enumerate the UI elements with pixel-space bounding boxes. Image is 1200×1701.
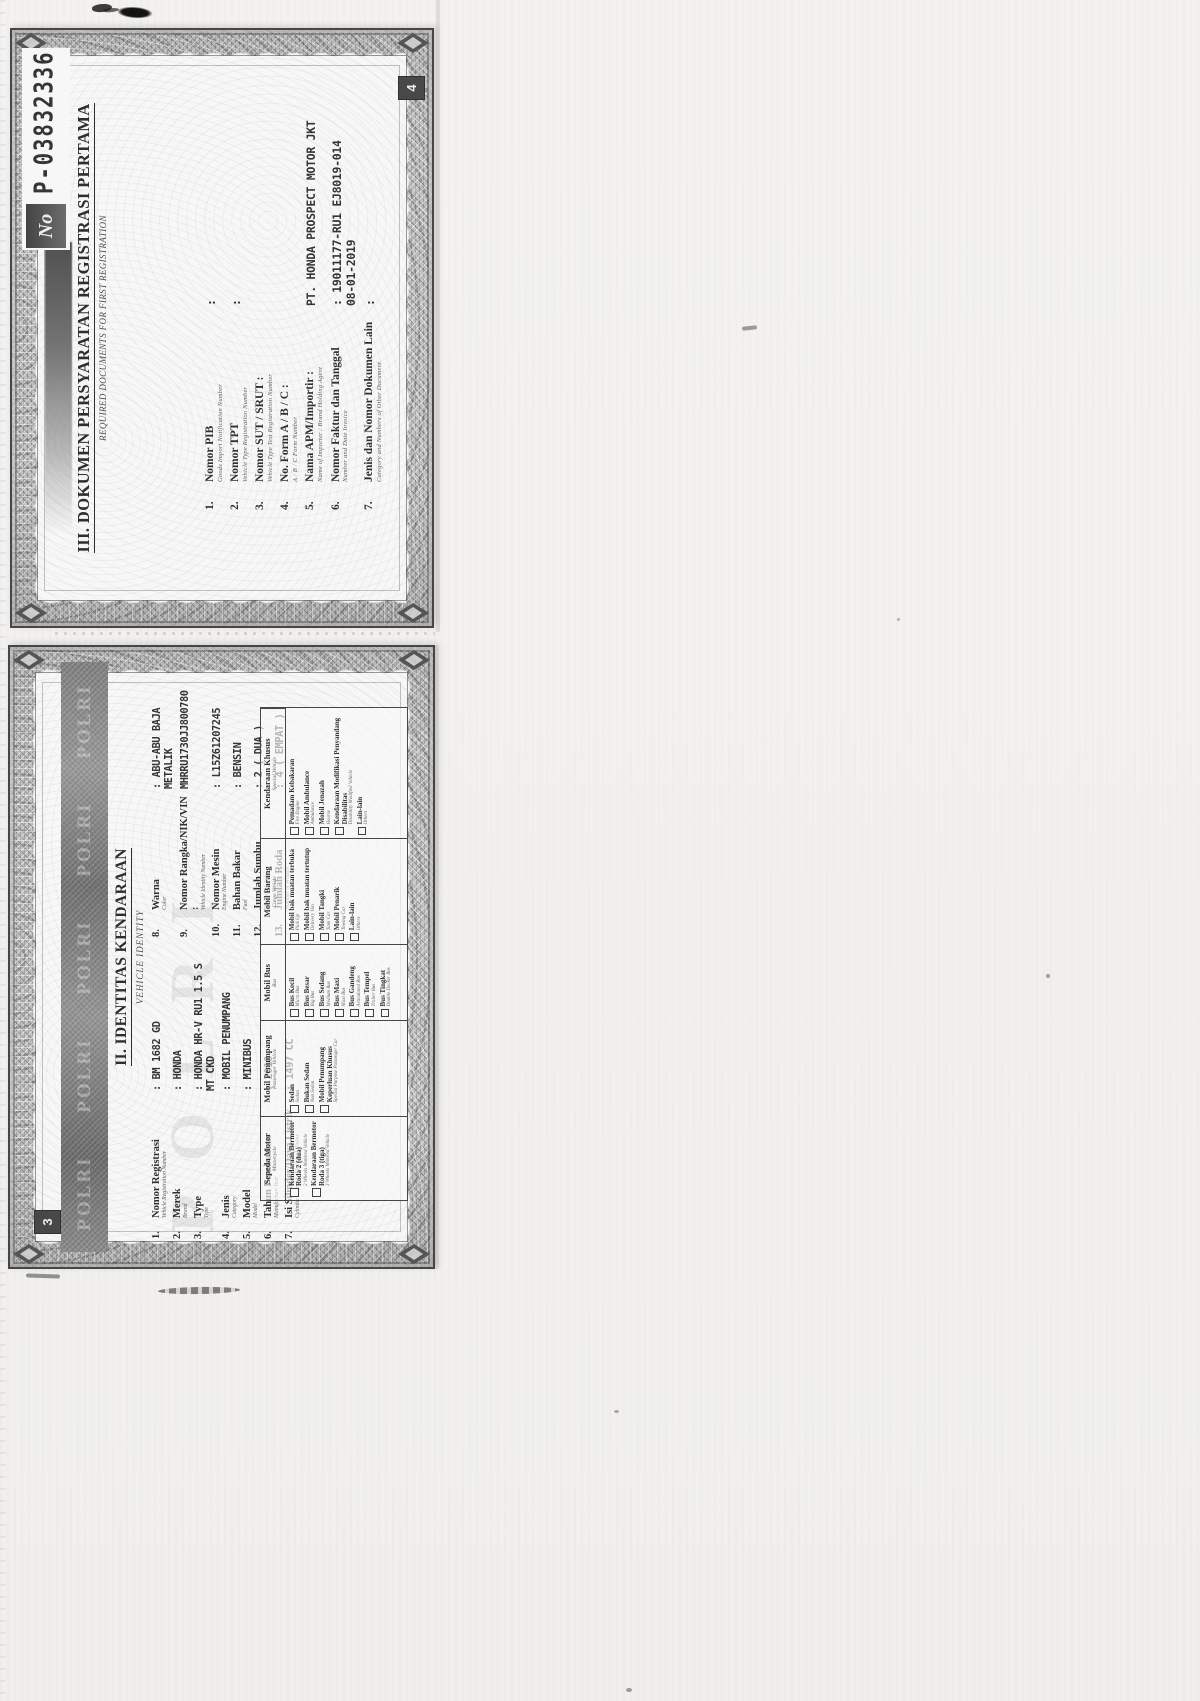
category-label: Bukan SedanNon Sedan [304,1023,317,1102]
checkbox-icon [335,827,344,836]
category-label: Bus MaxiMaxi Bus [334,947,347,1006]
category-label: Kendaraan Bermotor Roda 3 (tiga)3 Wheels… [311,1119,331,1186]
item-value-line2: 08-01-2019 [344,64,358,306]
field-number: 7. [284,1221,301,1239]
field-sublabel: Category [232,1094,238,1218]
category-option: Mobil PenarikTowing Car [334,841,347,941]
category-sublabel: Ambulance [311,710,316,824]
category-sublabel: Medium Bus [327,947,332,1006]
category-label: Kendaraan Bermotor Roda 2 (dua)2 Wheels … [289,1119,309,1186]
field-number: 9. [179,913,207,937]
item-value: : 19011177-RU1 EJ8019-01408-01-2019 [330,64,359,306]
category-option: Mobil AmbulanceAmbulance [304,710,317,835]
item-label: Nomor Faktur dan TanggalNumber and Date … [330,310,359,482]
checkbox-icon [305,933,314,942]
scanned-page-3: POLRI POLRI POLRI POLRI POLRI POLRI II. … [8,645,435,1269]
table-cell-kendaraan-khusus: Pemadam KebakaranFire Engine Mobil Ambul… [286,708,407,838]
page-number-badge: 3 [34,1210,61,1234]
corner-ornament-icon [13,1244,45,1264]
category-sublabel: Special Purpose Passenger Car [334,1023,339,1102]
table-header-kendaraan-khusus: Kendaraan KhususSpecial Vehicle [261,708,286,838]
polri-band-text: POLRI [74,683,96,758]
field-label: WarnaColor [151,792,176,910]
no-label-box: No [26,204,66,248]
scan-speck [742,325,757,331]
field-sublabel: Engine Number [222,792,228,910]
item-number: 4. [279,486,299,510]
category-sublabel: Double Decker Bus [387,947,392,1006]
category-sublabel: Others [364,710,369,824]
field-sublabel: Vehicle Registration Number [162,1094,168,1218]
field-sublabel: Fuel [243,792,249,910]
category-sublabel: Tank Car [327,841,332,930]
field-label: Bahan BakarFuel [232,792,249,910]
category-option: Bus BesarBig Bus [304,947,317,1017]
item-value [254,64,274,306]
item-sublabel: Goods Import Notification Number [217,310,224,482]
checkbox-icon [290,1009,299,1018]
vehicle-field-row: 11. Bahan BakarFuel : BENSIN [232,655,249,937]
category-label: Mobil TangkiTank Car [319,841,332,930]
document-item-row: 5. Nama APM/Importir :Name of Importer /… [304,64,324,510]
category-option: Bus TempelTrailer Bus [364,947,377,1017]
checkbox-icon [381,1009,390,1018]
field-sublabel: Color [162,792,168,910]
page-4-title: III. DOKUMEN PERSYARATAN REGISTRASI PERT… [74,30,94,626]
table-header-sepeda-motor: Sepeda MotorMotorcycle [261,1116,286,1200]
field-label: ModelModel [242,1094,259,1218]
item-number: 2. [229,486,249,510]
table-header-mobil-bus: Mobil BusBus [261,944,286,1020]
scan-mark [26,1273,60,1278]
field-number: 3. [193,1221,218,1239]
category-sublabel: Towing Car [342,841,347,930]
item-label: Nomor SUT / SRUT :Vehicle Type Test Regi… [254,310,274,482]
category-label: Bus TempelTrailer Bus [364,947,377,1006]
vehicle-field-row: 5. ModelModel : MINIBUS [242,937,259,1239]
category-label: Mobil PenarikTowing Car [334,841,347,930]
vehicle-category-table: Sepeda MotorMotorcycle Mobil PenumpangPa… [260,707,408,1201]
polri-band-text: POLRI [74,919,96,994]
category-option: Lain-lainOthers [357,710,370,835]
category-sublabel: Hearse [327,710,332,824]
scanned-page-4: No P-03832336 III. DOKUMEN PERSYARATAN R… [10,28,434,628]
category-option: SedanSedan [289,1023,302,1113]
scan-edge-noise [0,0,6,1701]
category-option: Mobil JenazahHearse [319,710,332,835]
field-value: MHRRU1730JJ800780 [179,655,207,789]
field-value-line2: METALIK [163,655,175,789]
checkbox-icon [320,933,329,942]
category-option: Bus KecilMicro Bus [289,947,302,1017]
field-sublabel: Brand [183,1094,189,1218]
category-sublabel: Fire Engine [296,710,301,824]
checkbox-icon [320,1009,329,1018]
corner-ornament-icon [397,603,429,623]
table-cell-mobil-barang: Mobil bak muatan terbukaPick Up Mobil ba… [286,838,407,944]
ink-smudge [92,3,113,13]
page-3-subtitle: VEHICLE IDENTITY [135,647,145,1267]
checkbox-icon [335,1009,344,1018]
checkbox-icon [320,1105,329,1114]
document-item-row: 2. Nomor TPTVehicle Type Registration Nu… [229,64,249,510]
category-label: Mobil JenazahHearse [319,710,332,824]
table-cell-sepeda-motor: Kendaraan Bermotor Roda 2 (dua)2 Wheels … [286,1116,407,1200]
field-number: 10. [211,913,228,937]
category-sublabel: Pick Up [296,841,301,930]
table-header-sublabel: Special Vehicle [272,709,278,838]
table-header-sublabel: Bus [272,945,278,1020]
checkbox-icon [290,827,299,836]
scan-smudge [158,1286,240,1294]
serial-number: P-03832336 [30,51,60,194]
category-option: Mobil TangkiTank Car [319,841,332,941]
page-3-sheet: POLRI POLRI POLRI POLRI POLRI POLRI II. … [8,645,435,1269]
field-value-line2: MT CKD [205,937,217,1091]
field-number: 4. [221,1221,238,1239]
category-sublabel: Sedan [296,1023,301,1102]
field-value: : MINIBUS [242,937,259,1091]
document-item-row: 7. Jenis dan Nomor Dokumen LainCategory … [363,64,383,510]
category-option: Pemadam KebakaranFire Engine [289,710,302,835]
item-value: : [204,64,224,306]
checkbox-icon [350,1009,359,1018]
checkbox-icon [290,1189,299,1198]
field-sublabel: Vehicle Identity Number [201,792,207,910]
scallop-border-bottom [407,673,420,1241]
corner-ornament-icon [13,650,45,670]
item-label: Nomor TPTVehicle Type Registration Numbe… [229,310,249,482]
field-number: 8. [151,913,176,937]
scan-speck [626,1688,632,1692]
field-sublabel: Type [204,1094,210,1218]
checkbox-icon [290,933,299,942]
category-option: Mobil Penumpang Keperluan KhususSpecial … [319,1023,339,1113]
item-label: No. Form A / B / C :A / B / C Form Numbe… [279,310,299,482]
item-number: 1. [204,486,224,510]
vehicle-field-row: 4. JenisCategory : MOBIL PENUMPANG [221,937,238,1239]
checkbox-icon [305,1105,314,1114]
item-number: 6. [330,486,359,510]
field-value: : BENSIN [232,655,249,789]
category-sublabel: Maxi Bus [342,947,347,1006]
category-option: Bus GandengArticulated Bus [349,947,362,1017]
category-sublabel: Micro Bus [296,947,301,1006]
category-sublabel: Disability Modified Vehicle [349,710,354,824]
field-value: : L15Z61207245 [211,655,228,789]
item-value: PT. HONDA PROSPECT MOTOR JKT [304,64,324,306]
scallop-border-top [23,673,36,1241]
item-sublabel: Number and Date Invoice [342,310,349,482]
category-option: Bukan SedanNon Sedan [304,1023,317,1113]
category-option: Mobil bak muatan tertutupDelivery Van [304,841,317,941]
item-sublabel: Category and Numbers of Other Document [376,310,383,482]
table-header-sublabel: Passenger Vehicle [272,1021,278,1116]
checkbox-icon [335,933,344,942]
category-option: Mobil bak muatan terbukaPick Up [289,841,302,941]
header-gradient-band [45,242,72,534]
field-label: Nomor MesinEngine Number [211,792,228,910]
item-label: Nomor PIBGoods Import Notification Numbe… [204,310,224,482]
category-label: Mobil bak muatan tertutupDelivery Van [304,841,317,930]
category-option: Kendaraan Modifikasi Penyandang Disabili… [334,710,354,835]
corner-ornament-icon [398,650,430,670]
category-label: SedanSedan [289,1023,302,1102]
table-header-mobil-barang: Mobil BarangCargo Vehicle [261,838,286,944]
field-value: : MOBIL PENUMPANG [221,937,238,1091]
item-label: Nama APM/Importir :Name of Importer / Br… [304,310,324,482]
category-sublabel: Non Sedan [311,1023,316,1102]
document-item-row: 1. Nomor PIBGoods Import Notification Nu… [204,64,224,510]
document-items-list: 1. Nomor PIBGoods Import Notification Nu… [204,64,388,510]
category-sublabel: 3 Wheels Motored Vehicle [326,1119,331,1186]
page-4-sheet: No P-03832336 III. DOKUMEN PERSYARATAN R… [10,28,434,628]
vehicle-field-row: 2. MerekBrand : HONDA [172,937,189,1239]
category-label: Bus TingkatDouble Decker Bus [380,947,393,1006]
scan-speck [614,1410,619,1413]
category-sublabel: 2 Wheels Motored Vehicle [304,1119,309,1186]
category-option: Bus MaxiMaxi Bus [334,947,347,1017]
scanned-vehicle-registration-document: { "document": { "serial_prefix": "No", "… [0,0,1200,1701]
category-sublabel: Articulated Bus [357,947,362,1006]
category-label: Mobil AmbulanceAmbulance [304,710,317,824]
item-label: Jenis dan Nomor Dokumen LainCategory and… [363,310,383,482]
document-item-row: 6. Nomor Faktur dan TanggalNumber and Da… [330,64,359,510]
table-header-sublabel: Cargo Vehicle [272,839,278,944]
item-number: 5. [304,486,324,510]
no-label: No [35,214,58,238]
category-sublabel: Big Bus [311,947,316,1006]
category-label: Pemadam KebakaranFire Engine [289,710,302,824]
item-value [279,64,299,306]
category-label: Lain-lainOthers [349,841,362,930]
item-number: 7. [363,486,383,510]
checkbox-icon [290,1105,299,1114]
item-number: 3. [254,486,274,510]
category-label: Mobil Penumpang Keperluan KhususSpecial … [319,1023,339,1102]
field-value: : BM 1682 GD [151,937,168,1091]
checkbox-icon [305,1009,314,1018]
category-label: Mobil bak muatan terbukaPick Up [289,841,302,930]
polri-band-text: POLRI [74,1037,96,1112]
ink-smudge [117,4,158,21]
checkbox-icon [320,827,329,836]
category-sublabel: Trailer Bus [372,947,377,1006]
category-option: Kendaraan Bermotor Roda 2 (dua)2 Wheels … [289,1119,309,1197]
polri-band-text: POLRI [74,801,96,876]
page-3-title: II. IDENTITAS KENDARAAN [113,647,131,1267]
table-cell-mobil-bus: Bus KecilMicro Bus Bus BesarBig Bus Bus … [286,944,407,1020]
corner-ornament-icon [15,603,47,623]
field-number: 1. [151,1221,168,1239]
table-header-sublabel: Motorcycle [272,1117,278,1200]
scan-edge-shadow [436,0,440,632]
item-sublabel: A / B / C Form Number [292,310,299,482]
field-value: : HONDA [172,937,189,1091]
page-number-badge: 4 [398,76,425,100]
scan-noise-line [55,632,435,635]
vehicle-field-row: 8. WarnaColor : ABU-ABU BAJAMETALIK [151,655,176,937]
item-sublabel: Vehicle Type Test Registration Number [267,310,274,482]
item-sublabel: Name of Importer / Brand Holding Agent [317,310,324,482]
field-label: TypeType [193,1094,218,1218]
category-option: Bus TingkatDouble Decker Bus [380,947,393,1017]
category-option: Bus SedangMedium Bus [319,947,332,1017]
scan-speck [1046,974,1050,978]
category-label: Bus SedangMedium Bus [319,947,332,1006]
table-header-mobil-penumpang: Mobil PenumpangPassenger Vehicle [261,1020,286,1116]
field-label: Nomor RegistrasiVehicle Registration Num… [151,1094,168,1218]
item-sublabel: Vehicle Type Registration Number [242,310,249,482]
checkbox-icon [312,1189,321,1198]
field-sublabel: Model [253,1094,259,1218]
page-4-subtitle: REQUIRED DOCUMENTS FOR FIRST REGISTRATIO… [98,30,108,626]
category-option: Kendaraan Bermotor Roda 3 (tiga)3 Wheels… [311,1119,331,1197]
scallop-border-bottom [406,56,419,600]
checkbox-icon [350,933,359,942]
field-number: 2. [172,1221,189,1239]
category-label: Kendaraan Modifikasi Penyandang Disabili… [334,710,354,824]
scan-speck [897,618,900,621]
category-label: Lain-lainOthers [357,710,370,824]
checkbox-icon [365,1009,374,1018]
serial-number-strip: No P-03832336 [22,48,70,250]
corner-ornament-icon [397,33,429,53]
category-label: Bus KecilMicro Bus [289,947,302,1006]
polri-header-band: POLRI POLRI POLRI POLRI POLRI [61,662,108,1252]
category-option: Lain-lainOthers [349,841,362,941]
document-item-row: 4. No. Form A / B / C :A / B / C Form Nu… [279,64,299,510]
field-number: 5. [242,1221,259,1239]
category-label: Bus BesarBig Bus [304,947,317,1006]
vehicle-field-row: 10. Nomor MesinEngine Number : L15Z61207… [211,655,228,937]
field-label: JenisCategory [221,1094,238,1218]
item-value: : [229,64,249,306]
field-label: Nomor Rangka/NIK/VIN :Vehicle Identity N… [179,792,207,910]
field-label: MerekBrand [172,1094,189,1218]
field-value: : HONDA HR-V RU1 1.5 SMT CKD [193,937,218,1091]
vehicle-field-row: 3. TypeType : HONDA HR-V RU1 1.5 SMT CKD [193,937,218,1239]
checkbox-icon [305,827,314,836]
field-number: 11. [232,913,249,937]
polri-band-text: POLRI [74,1155,96,1230]
checkbox-icon [358,827,367,836]
category-sublabel: Delivery Van [311,841,316,930]
vehicle-field-row: 1. Nomor RegistrasiVehicle Registration … [151,937,168,1239]
document-item-row: 3. Nomor SUT / SRUT :Vehicle Type Test R… [254,64,274,510]
field-value: : ABU-ABU BAJAMETALIK [151,655,176,789]
item-value: : [363,64,383,306]
category-sublabel: Others [357,841,362,930]
vehicle-field-row: 9. Nomor Rangka/NIK/VIN :Vehicle Identit… [179,655,207,937]
category-label: Bus GandengArticulated Bus [349,947,362,1006]
field-number: 6. [263,1221,280,1239]
table-cell-mobil-penumpang: SedanSedan Bukan SedanNon Sedan Mobil Pe… [286,1020,407,1116]
corner-ornament-icon [398,1244,430,1264]
scan-edge-shadow [435,645,439,1269]
